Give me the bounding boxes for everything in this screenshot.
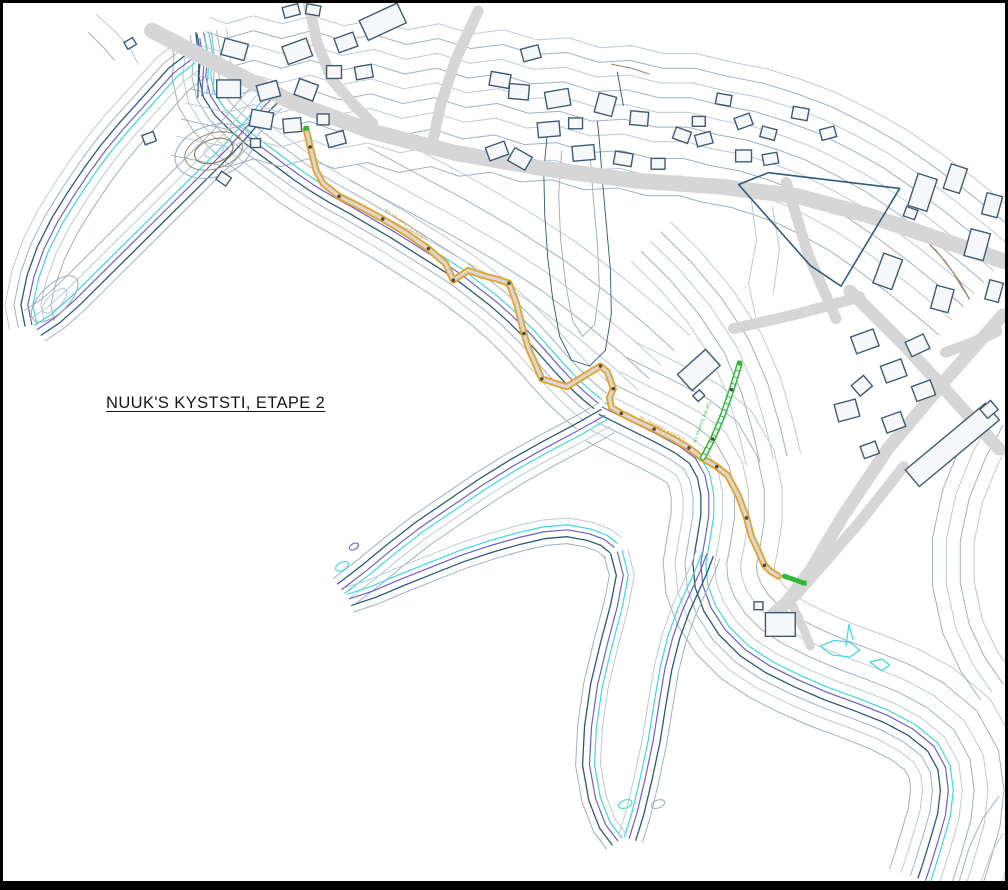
building-footprint [985,280,1004,303]
building-footprint [142,131,157,144]
building-footprint [283,118,302,133]
building-footprint [305,4,320,16]
trail-node-dot [381,217,385,221]
building-footprint [931,285,954,312]
building-footprint [569,118,583,129]
building-footprint [851,375,872,396]
contour-line-west-peninsula-se-shore [45,108,282,341]
trail-node-dot [507,281,511,285]
contour-line [870,659,890,671]
contour-ring [348,542,360,552]
building-footprint [695,131,713,147]
trail-node-dot [522,332,526,336]
trail-endpoint-marker [802,581,807,586]
building-footprint [508,84,529,100]
contour-line-west-peninsula-se-shore [41,103,277,335]
building-footprint [851,329,880,354]
building-footprint [982,193,1003,218]
contour-line-southeast-coast-bottom-bay [635,342,1005,881]
building-footprint [359,3,406,40]
building-footprint [736,150,752,162]
contour-line-east-slope [661,232,787,456]
contour-line-west-peninsula-se-shore [35,95,269,325]
drawing-sheet: NY TRAMPET KYSTSTINY TRAMPET KYSTSTINY T… [0,0,1008,890]
trail-node-dot [612,387,616,391]
building-footprint [489,71,511,88]
contour-line-bay1-south-shore [338,410,601,584]
building-footprint [873,253,903,289]
contour-ring [650,798,666,810]
contour-line-south-finger-west-shore [583,554,617,845]
trail-node-dot [599,364,603,368]
trail-node-dot [540,377,544,381]
contour-line-south-finger-east-shore [624,552,702,836]
building-footprint [760,126,777,140]
contour-line [749,200,757,316]
contour-line-east-slope [671,222,801,452]
trail-endpoint-marker [304,126,309,131]
contour-line-bay1-south-shore [349,426,610,599]
contour-line [88,33,114,61]
building-footprint [677,349,720,390]
building-footprint [354,64,373,80]
contour-line-right-edge-curves [974,432,1005,676]
contour-line-bay1-south-shore [342,416,605,590]
contour-line-west-peninsula-nw-shore [41,70,199,323]
trail-node-dot [730,388,734,392]
contour-line-south-finger-west-shore [600,549,634,834]
building-footprint [819,126,836,140]
trail-node-dot [620,412,624,416]
contour-ring [334,559,350,573]
building-footprint [834,399,860,422]
contour-line [981,834,1003,881]
contour-line-mid-finger-south-shore [350,530,615,599]
contour-line-south-finger-west-shore [576,555,610,849]
building-footprint [765,613,795,637]
building-footprint [715,93,732,106]
building-footprint [880,359,907,383]
building-footprint [594,93,616,117]
trail-node-dot [308,145,312,149]
road-segment [432,11,478,143]
road-segment [772,315,1003,615]
building-footprint [521,45,542,62]
building-footprint [791,106,809,120]
contour-ring [617,798,633,810]
contour-line-right-edge-curves [960,425,1003,683]
road-segment [794,467,903,597]
trail-endpoint-marker [737,361,742,366]
trail-node-dot [337,195,341,199]
building-footprint [334,32,358,53]
contour-line-top-hillside [190,89,984,282]
plan-title: NUUK'S KYSTSTI, ETAPE 2 [106,394,325,413]
trail-node-dot [745,516,749,520]
contour-line-bay1-south-shore [333,404,597,579]
building-footprint [544,88,570,109]
building-footprint [124,38,137,50]
trail-node-dot [763,564,767,568]
contour-line-south-finger-west-shore [594,551,628,838]
map-canvas: NY TRAMPET KYSTSTINY TRAMPET KYSTSTINY T… [3,3,1005,881]
contour-line-west-peninsula-se-shore [25,82,256,310]
trail-node-dot [687,446,691,450]
trail-node-dot [715,465,719,469]
building-footprint [217,80,241,98]
building-footprint [326,131,347,148]
contour-line [617,72,623,106]
building-footprint [672,127,691,144]
contour-line [772,206,779,293]
building-footprint [327,66,342,79]
building-footprint [651,158,665,169]
building-footprint [613,151,633,167]
building-footprint [908,173,937,211]
contour-line-west-peninsula-nw-shore [33,63,194,323]
contour-line [935,250,964,291]
contour-line-west-peninsula-nw-shore [21,54,187,326]
building-footprint [317,114,329,125]
building-footprint [251,139,261,148]
building-footprint [249,109,273,129]
trail-node-dot [427,247,431,251]
contour-line-west-peninsula-nw-shore [5,42,177,330]
building-footprint [282,4,300,19]
building-footprint [734,113,753,130]
building-footprint [572,145,595,162]
building-footprint [537,121,560,138]
building-footprint [754,602,763,610]
building-footprint [692,116,705,126]
trail-node-dot [452,278,456,282]
building-footprint [216,171,231,186]
contour-line-bay1-south-shore [345,420,607,593]
trail-node-dot [711,437,715,441]
trail-node-dot [652,427,656,431]
building-footprint [221,38,248,60]
building-footprint [630,111,649,126]
contour-line-east-slope [651,242,773,459]
building-footprint [762,152,779,165]
